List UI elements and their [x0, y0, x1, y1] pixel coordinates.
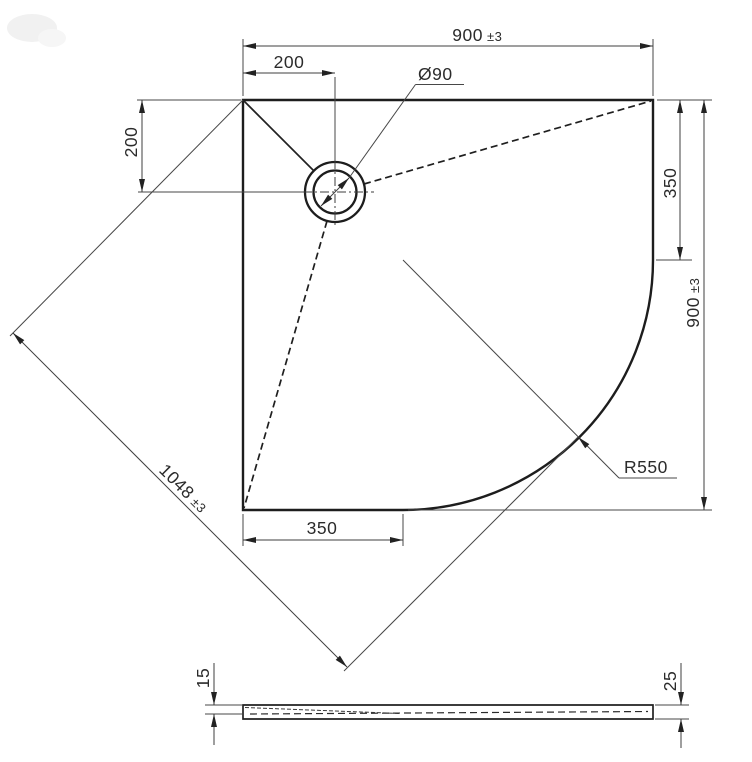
- plan-view: Ø90 900 ±3 200 200 350: [10, 25, 712, 671]
- dim-line: [13, 333, 347, 667]
- dim-label-drain-diameter: Ø90: [418, 64, 453, 84]
- dim-label-overall-height: 25: [660, 671, 680, 691]
- dim-label-bottom-straight: 350: [307, 518, 338, 538]
- dim-drain-offset-y: 200: [121, 100, 241, 192]
- dim-right-height: 900 ±3: [408, 100, 712, 510]
- dim-label-corner-radius: R550: [624, 457, 668, 477]
- fold-line-solid-topleft: [243, 100, 314, 171]
- ext-line: [344, 437, 578, 671]
- watermark: [7, 14, 66, 47]
- dim-label-drain-offset-x: 200: [274, 52, 305, 72]
- dim-label-drain-offset-y: 200: [121, 127, 141, 158]
- dim-drain-offset-x: 200: [243, 52, 335, 73]
- drawing-canvas: Ø90 900 ±3 200 200 350: [0, 0, 752, 762]
- dim-label-height: 900: [683, 297, 703, 328]
- dim-bottom-straight: 350: [243, 514, 403, 546]
- fold-line-dashed-bottomleft: [244, 221, 327, 508]
- dim-label-right-straight: 350: [660, 168, 680, 199]
- dim-label-width-tolerance: ±3: [487, 29, 502, 44]
- dim-corner-radius: R550: [403, 260, 677, 478]
- dim-label-diagonal-tolerance: ±3: [188, 494, 209, 515]
- drawing-page: Ø90 900 ±3 200 200 350: [0, 0, 752, 762]
- fold-line-dashed-topright: [364, 101, 651, 184]
- dim-drain-diameter: Ø90: [321, 64, 464, 206]
- dim-top-width: 900 ±3: [243, 25, 653, 96]
- profile-hidden-line: [250, 712, 648, 715]
- diameter-leader: [349, 85, 416, 179]
- dim-diagonal: 1048 ±3: [10, 100, 578, 671]
- profile-slope-line: [245, 708, 400, 714]
- dim-edge-thickness: 15: [193, 663, 242, 745]
- profile-view: 15 25: [193, 663, 689, 748]
- dim-label-edge-thickness: 15: [193, 668, 213, 688]
- dim-label-width: 900: [452, 25, 483, 45]
- dim-label-height-tolerance: ±3: [687, 278, 702, 293]
- dim-overall-height: 25: [655, 663, 689, 748]
